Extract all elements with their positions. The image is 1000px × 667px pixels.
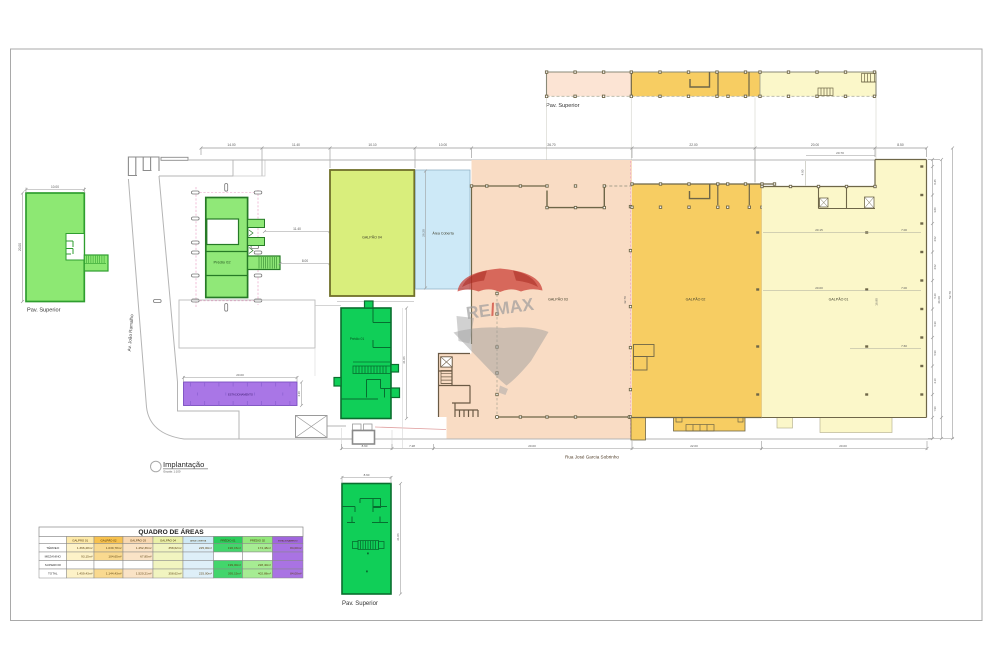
svg-text:GALPÃO 01: GALPÃO 01 xyxy=(829,297,849,302)
svg-text:402,88m²: 402,88m² xyxy=(258,572,271,576)
svg-text:Escala: 1:100: Escala: 1:100 xyxy=(164,470,181,474)
svg-text:67,85m²: 67,85m² xyxy=(140,555,151,559)
svg-text:TÉRREO: TÉRREO xyxy=(46,545,59,550)
svg-text:22.00: 22.00 xyxy=(689,143,697,147)
svg-text:10.00: 10.00 xyxy=(51,185,59,189)
svg-text:16.90: 16.90 xyxy=(875,298,879,306)
svg-text:20.00: 20.00 xyxy=(811,143,819,147)
svg-text:7.60: 7.60 xyxy=(901,344,907,348)
svg-text:26.20: 26.20 xyxy=(421,229,425,237)
svg-text:26.70: 26.70 xyxy=(547,143,555,147)
svg-text:ESTACIONAMENTO: ESTACIONAMENTO xyxy=(228,392,253,396)
svg-text:Av. João Ramalho: Av. João Ramalho xyxy=(127,314,135,352)
svg-text:358,62m²: 358,62m² xyxy=(168,572,181,576)
svg-text:199,00m²: 199,00m² xyxy=(228,563,241,567)
svg-text:3.60: 3.60 xyxy=(933,207,937,213)
svg-text:GALPÃO 02: GALPÃO 02 xyxy=(686,297,706,302)
svg-text:104,65m²: 104,65m² xyxy=(108,555,121,559)
svg-text:8.00: 8.00 xyxy=(302,259,308,263)
svg-text:84,00m²: 84,00m² xyxy=(290,546,301,550)
svg-text:GALPÃO 03: GALPÃO 03 xyxy=(130,537,146,542)
svg-text:93,15m²: 93,15m² xyxy=(81,555,92,559)
svg-text:196,15m²: 196,15m² xyxy=(228,546,241,550)
svg-text:PRÉDIO 01: PRÉDIO 01 xyxy=(220,537,235,542)
svg-text:1.039,78m²: 1.039,78m² xyxy=(106,546,122,550)
svg-text:20.70: 20.70 xyxy=(836,151,844,155)
svg-text:20.00: 20.00 xyxy=(815,286,823,290)
svg-text:Implantação: Implantação xyxy=(163,460,204,469)
svg-text:21.06: 21.06 xyxy=(396,533,400,541)
svg-text:20.00: 20.00 xyxy=(839,444,847,448)
svg-text:SUPERIOR: SUPERIOR xyxy=(45,563,62,567)
svg-text:14.00: 14.00 xyxy=(227,143,235,147)
svg-text:ÁREA COBERTA: ÁREA COBERTA xyxy=(190,539,207,542)
svg-text:11.40: 11.40 xyxy=(292,143,300,147)
svg-text:225,00m²: 225,00m² xyxy=(199,546,212,550)
svg-text:8.60: 8.60 xyxy=(364,473,370,477)
svg-text:PRÉDIO 02: PRÉDIO 02 xyxy=(250,537,265,542)
svg-text:225,00m²: 225,00m² xyxy=(199,572,212,576)
svg-text:1.366,28m²: 1.366,28m² xyxy=(77,546,93,550)
svg-text:GALPÃO 01: GALPÃO 01 xyxy=(72,537,88,542)
svg-text:Rua José Garcia Sobrinho: Rua José Garcia Sobrinho xyxy=(565,455,619,460)
svg-text:7.28: 7.28 xyxy=(409,444,415,448)
svg-text:4.00: 4.00 xyxy=(801,169,805,175)
svg-text:20.00: 20.00 xyxy=(18,243,22,251)
svg-text:Pav. Superior: Pav. Superior xyxy=(27,308,61,314)
svg-text:20.00: 20.00 xyxy=(528,444,536,448)
svg-text:ESTACIONAMENTO: ESTACIONAMENTO xyxy=(278,539,298,542)
svg-text:TOTAL: TOTAL xyxy=(48,572,58,576)
svg-text:1.452,36m²: 1.452,36m² xyxy=(136,546,152,550)
svg-text:GALPÃO 02: GALPÃO 02 xyxy=(101,537,117,542)
svg-text:7.00: 7.00 xyxy=(901,228,907,232)
svg-text:10.10: 10.10 xyxy=(368,143,376,147)
svg-text:10.00: 10.00 xyxy=(439,143,447,147)
svg-text:7.90: 7.90 xyxy=(933,406,937,412)
svg-text:358,62m²: 358,62m² xyxy=(168,546,181,550)
svg-text:MEZANINO: MEZANINO xyxy=(45,555,62,559)
svg-text:11.40: 11.40 xyxy=(293,227,301,231)
svg-text:22.00: 22.00 xyxy=(690,444,698,448)
svg-text:4.30: 4.30 xyxy=(297,391,301,397)
svg-text:4.52: 4.52 xyxy=(933,236,937,242)
svg-text:8.60: 8.60 xyxy=(362,444,368,448)
svg-text:395,15m²: 395,15m² xyxy=(228,572,241,576)
svg-text:5.90: 5.90 xyxy=(933,350,937,356)
svg-text:Pav. Superior: Pav. Superior xyxy=(342,601,378,607)
svg-text:4.52: 4.52 xyxy=(933,264,937,270)
svg-text:QUADRO DE ÁREAS: QUADRO DE ÁREAS xyxy=(138,527,204,536)
svg-text:GALPÃO 03: GALPÃO 03 xyxy=(548,297,568,302)
svg-text:52.70: 52.70 xyxy=(948,291,952,299)
svg-text:228,40m²: 228,40m² xyxy=(258,563,271,567)
svg-text:44.60: 44.60 xyxy=(937,296,941,304)
svg-text:8.50: 8.50 xyxy=(897,143,904,147)
svg-text:7.00: 7.00 xyxy=(901,286,907,290)
svg-text:6.45: 6.45 xyxy=(933,179,937,185)
svg-text:20.15: 20.15 xyxy=(815,228,823,232)
svg-text:Prédio 01: Prédio 01 xyxy=(350,337,365,341)
svg-text:GALPÃO 04: GALPÃO 04 xyxy=(160,537,176,542)
svg-text:Prédio 02: Prédio 02 xyxy=(213,260,231,265)
svg-text:84,00m²: 84,00m² xyxy=(290,572,301,576)
svg-text:174,48m²: 174,48m² xyxy=(258,546,271,550)
svg-text:1.459,43m²: 1.459,43m² xyxy=(77,572,93,576)
svg-text:20.00: 20.00 xyxy=(236,373,244,377)
svg-text:32.70: 32.70 xyxy=(623,296,627,304)
svg-text:5.30: 5.30 xyxy=(933,321,937,327)
svg-text:Área Coberta: Área Coberta xyxy=(432,232,453,236)
svg-text:1.144,43m²: 1.144,43m² xyxy=(106,572,122,576)
svg-text:4.10: 4.10 xyxy=(933,378,937,384)
svg-text:Pav. Superior: Pav. Superior xyxy=(546,103,580,109)
svg-text:GALPÃO 04: GALPÃO 04 xyxy=(362,235,382,240)
svg-text:1.520,21m²: 1.520,21m² xyxy=(136,572,152,576)
